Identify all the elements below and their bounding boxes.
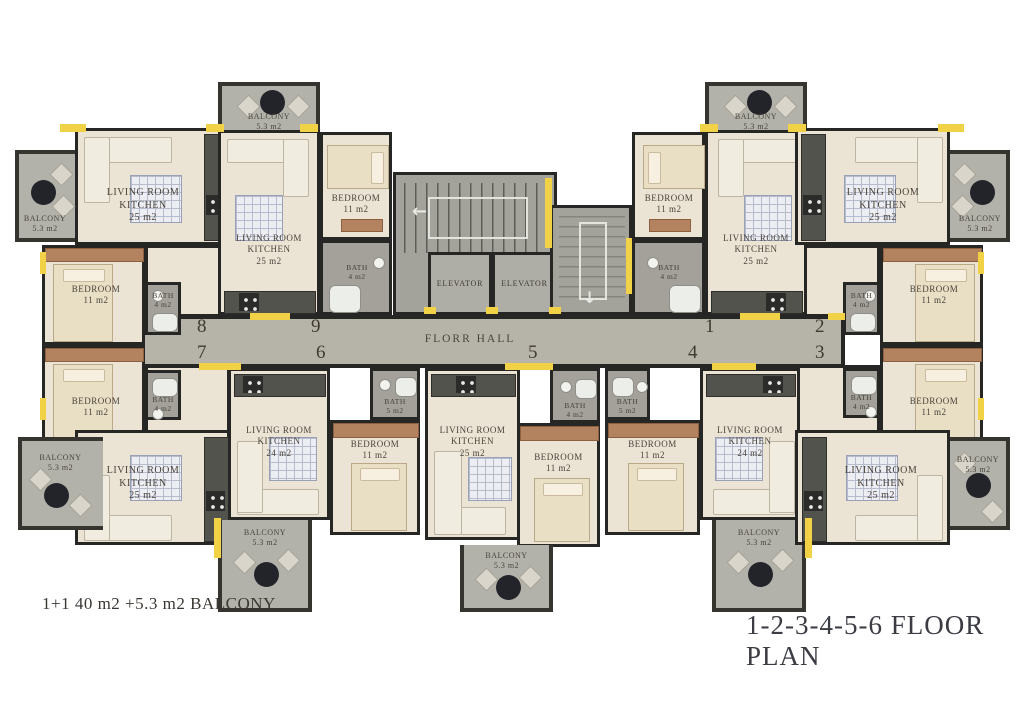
pillow bbox=[543, 483, 583, 496]
unit-4-bath: BATH 5 m2 bbox=[605, 368, 650, 420]
unit-5-living-room: LIVING ROOM KITCHEN 25 m2 bbox=[425, 368, 520, 540]
room-label: BATH 4 m2 bbox=[553, 401, 597, 420]
room-label: BEDROOM 11 m2 bbox=[608, 439, 697, 462]
wall-accent bbox=[978, 252, 984, 274]
shower bbox=[612, 377, 634, 397]
wall-accent bbox=[214, 518, 221, 558]
unit-1-bath: BATH 4 m2 bbox=[632, 240, 705, 315]
room-label: BEDROOM 11 m2 bbox=[323, 193, 389, 216]
room-label: BALCONY 5.3 m2 bbox=[954, 214, 1006, 234]
sink bbox=[636, 381, 648, 393]
pillow bbox=[371, 152, 384, 183]
wall-accent bbox=[788, 124, 806, 132]
room-label: BEDROOM 11 m2 bbox=[520, 452, 597, 475]
shower bbox=[395, 377, 417, 397]
wardrobe bbox=[333, 423, 419, 438]
wall-accent bbox=[206, 124, 224, 132]
room-label: BALCONY 5.3 m2 bbox=[22, 453, 99, 473]
pillow bbox=[360, 468, 400, 481]
hall-number-4: 4 bbox=[688, 342, 698, 364]
kitchen-counter bbox=[711, 291, 803, 314]
room-label: BEDROOM 11 m2 bbox=[51, 396, 141, 419]
wall-accent bbox=[712, 363, 756, 370]
balcony-table bbox=[496, 575, 521, 600]
hall-number-1: 1 bbox=[705, 316, 715, 338]
unit-4-bedroom: BEDROOM 11 m2 bbox=[605, 420, 700, 535]
wall-accent bbox=[805, 518, 812, 558]
wall-accent bbox=[545, 178, 552, 248]
room-label: LIVING ROOM KITCHEN 25 m2 bbox=[828, 187, 938, 225]
wall-accent bbox=[40, 252, 46, 274]
unit-5-bedroom: BEDROOM 11 m2 bbox=[517, 423, 600, 547]
pillow bbox=[925, 369, 968, 382]
balcony-table bbox=[254, 562, 279, 587]
pillow bbox=[63, 269, 106, 282]
room-label: BATH 4 m2 bbox=[335, 263, 379, 282]
shower bbox=[669, 285, 701, 313]
unit-8-bedroom: BEDROOM 11 m2 bbox=[42, 245, 145, 345]
room-label: LIVING ROOM KITCHEN 24 m2 bbox=[703, 425, 797, 459]
stove-icon bbox=[766, 293, 786, 311]
unit-2-living-room: LIVING ROOM KITCHEN 25 m2 bbox=[795, 128, 950, 245]
balcony-table bbox=[970, 180, 995, 205]
hall-number-2: 2 bbox=[815, 316, 825, 338]
room-label: BALCONY 5.3 m2 bbox=[716, 528, 802, 548]
elevator-1: ELEVATOR bbox=[428, 252, 492, 315]
room-label: BATH 4 m2 bbox=[846, 291, 877, 310]
unit-2-bath: BATH 4 m2 bbox=[843, 282, 880, 335]
unit-6-bedroom: BEDROOM 11 m2 bbox=[330, 420, 420, 535]
rug bbox=[468, 457, 512, 501]
kitchen-counter bbox=[801, 134, 826, 241]
room-label: BEDROOM 11 m2 bbox=[51, 284, 141, 307]
unit-9-living-room: LIVING ROOM KITCHEN 25 m2 bbox=[218, 130, 320, 315]
unit-1-bedroom: BEDROOM 11 m2 bbox=[632, 132, 705, 240]
legend-text: 1+1 40 m2 +5.3 m2 BALCONY bbox=[42, 594, 276, 614]
hall-number-5: 5 bbox=[528, 342, 538, 364]
unit-8-balcony: BALCONY 5.3 m2 bbox=[15, 150, 75, 242]
wall-accent bbox=[938, 124, 964, 132]
bed bbox=[534, 478, 590, 542]
elevator-1-label: ELEVATOR bbox=[431, 279, 489, 288]
hall-number-3: 3 bbox=[815, 342, 825, 364]
room-label: BALCONY 5.3 m2 bbox=[952, 455, 1004, 475]
unit-6-bath: BATH 5 m2 bbox=[370, 368, 420, 420]
stairwell-right: ↓ bbox=[550, 205, 632, 315]
sink bbox=[379, 379, 391, 391]
elevator-2-label: ELEVATOR bbox=[495, 279, 554, 288]
stove-icon bbox=[206, 491, 225, 511]
unit-6-living-room: LIVING ROOM KITCHEN 24 m2 bbox=[228, 368, 330, 520]
shower bbox=[152, 313, 178, 332]
unit-3-bath: BATH 4 m2 bbox=[843, 368, 880, 418]
wall-accent bbox=[978, 398, 984, 420]
floor-plan: FLORR HALL 8 9 1 2 7 6 5 4 3 ← ELEVATOR … bbox=[0, 0, 1024, 724]
shower bbox=[575, 379, 597, 399]
room-label: BEDROOM 11 m2 bbox=[889, 396, 979, 419]
room-label: LIVING ROOM KITCHEN 25 m2 bbox=[88, 465, 198, 503]
sofa bbox=[434, 451, 462, 535]
pillow bbox=[63, 369, 106, 382]
balcony-chair bbox=[726, 550, 750, 574]
balcony-chair bbox=[232, 550, 256, 574]
unit-7-balcony: BALCONY 5.3 m2 bbox=[18, 437, 103, 530]
stove-icon bbox=[763, 376, 783, 393]
unit-9-bedroom: BEDROOM 11 m2 bbox=[320, 132, 392, 240]
wardrobe bbox=[45, 348, 144, 362]
room-label: BALCONY 5.3 m2 bbox=[19, 214, 71, 234]
pillow bbox=[925, 269, 968, 282]
stairs-arrow-down-icon: ↓ bbox=[583, 288, 596, 307]
floor-hall-label: FLORR HALL bbox=[395, 333, 545, 345]
hall-number-8: 8 bbox=[197, 316, 207, 338]
pillow bbox=[637, 468, 677, 481]
room-label: BATH 4 m2 bbox=[148, 291, 178, 310]
wall-accent bbox=[700, 124, 718, 132]
shower bbox=[850, 313, 876, 332]
wall-accent bbox=[60, 124, 86, 132]
room-label: BATH 4 m2 bbox=[148, 395, 178, 414]
bed bbox=[643, 145, 705, 189]
wall-accent bbox=[828, 313, 845, 320]
wall-accent bbox=[626, 238, 632, 294]
shower bbox=[329, 285, 361, 313]
unit-7-bath: BATH 4 m2 bbox=[145, 370, 181, 420]
room-label: BATH 4 m2 bbox=[647, 263, 691, 282]
balcony-table bbox=[966, 473, 991, 498]
wall-accent bbox=[250, 313, 290, 320]
balcony-table bbox=[31, 180, 56, 205]
bed bbox=[351, 463, 407, 531]
hall-number-9: 9 bbox=[311, 316, 321, 338]
wall-accent bbox=[549, 307, 561, 314]
kitchen-counter bbox=[224, 291, 316, 314]
unit-9-balcony: BALCONY 5.3 m2 bbox=[218, 82, 320, 130]
unit-3-balcony: BALCONY 5.3 m2 bbox=[950, 437, 1010, 530]
balcony-table bbox=[44, 483, 69, 508]
room-label: BEDROOM 11 m2 bbox=[333, 439, 417, 462]
pillow bbox=[648, 152, 661, 183]
stove-icon bbox=[803, 195, 822, 215]
balcony-chair bbox=[68, 493, 92, 517]
room-label: LIVING ROOM KITCHEN 24 m2 bbox=[231, 425, 327, 459]
hall-number-7: 7 bbox=[197, 342, 207, 364]
unit-1-living-room: LIVING ROOM KITCHEN 25 m2 bbox=[705, 130, 807, 315]
room-label: BATH 5 m2 bbox=[373, 397, 417, 416]
stove-icon bbox=[243, 376, 263, 393]
plan-title: 1-2-3-4-5-6 FLOOR PLAN bbox=[746, 610, 1024, 672]
wall-accent bbox=[486, 307, 498, 314]
unit-9-bath: BATH 4 m2 bbox=[320, 240, 392, 315]
sink bbox=[560, 381, 572, 393]
elevator-2: ELEVATOR bbox=[492, 252, 557, 315]
bed bbox=[327, 145, 389, 189]
unit-2-balcony: BALCONY 5.3 m2 bbox=[950, 150, 1010, 242]
unit-4-living-room: LIVING ROOM KITCHEN 24 m2 bbox=[700, 368, 800, 520]
unit-1-balcony: BALCONY 5.3 m2 bbox=[705, 82, 807, 130]
unit-4-balcony: BALCONY 5.3 m2 bbox=[712, 520, 806, 612]
unit-5-balcony: BALCONY 5.3 m2 bbox=[460, 545, 553, 612]
room-label: LIVING ROOM KITCHEN 25 m2 bbox=[826, 465, 936, 503]
dresser bbox=[341, 219, 383, 232]
balcony-table bbox=[748, 562, 773, 587]
wall-accent bbox=[40, 398, 46, 420]
unit-8-living-room: LIVING ROOM KITCHEN 25 m2 bbox=[75, 128, 230, 245]
wall-accent bbox=[300, 124, 318, 132]
room-label: LIVING ROOM KITCHEN 25 m2 bbox=[708, 233, 804, 267]
balcony-chair bbox=[474, 567, 498, 591]
unit-5-bath: BATH 4 m2 bbox=[550, 368, 600, 423]
wardrobe bbox=[883, 348, 982, 362]
balcony-chair bbox=[276, 548, 300, 572]
wardrobe bbox=[883, 248, 982, 262]
room-label: BEDROOM 11 m2 bbox=[889, 284, 979, 307]
room-label: LIVING ROOM KITCHEN 25 m2 bbox=[88, 187, 198, 225]
room-label: LIVING ROOM KITCHEN 25 m2 bbox=[428, 425, 517, 459]
stove-icon bbox=[456, 376, 476, 393]
wardrobe bbox=[520, 426, 599, 441]
wardrobe bbox=[608, 423, 699, 438]
room-label: BATH 5 m2 bbox=[608, 397, 647, 416]
unit-3-living-room: LIVING ROOM KITCHEN 25 m2 bbox=[795, 430, 950, 545]
room-label: BATH 4 m2 bbox=[846, 393, 877, 412]
wall-accent bbox=[740, 313, 780, 320]
wall-accent bbox=[505, 363, 553, 370]
room-label: BEDROOM 11 m2 bbox=[635, 193, 703, 216]
balcony-chair bbox=[49, 162, 73, 186]
stove-icon bbox=[239, 293, 259, 311]
balcony-chair bbox=[980, 499, 1004, 523]
stairs-arrow-left-icon: ← bbox=[412, 201, 427, 222]
sofa bbox=[283, 139, 309, 197]
stairs-rail bbox=[428, 197, 528, 239]
dresser bbox=[649, 219, 691, 232]
hall-number-6: 6 bbox=[316, 342, 326, 364]
sofa bbox=[718, 139, 744, 197]
stove-icon bbox=[804, 491, 823, 511]
wall-accent bbox=[424, 307, 436, 314]
unit-8-bath: BATH 4 m2 bbox=[145, 282, 181, 335]
bed bbox=[628, 463, 684, 531]
wall-accent bbox=[199, 363, 241, 370]
wardrobe bbox=[45, 248, 144, 262]
unit-2-bedroom: BEDROOM 11 m2 bbox=[880, 245, 983, 345]
balcony-chair bbox=[770, 548, 794, 572]
room-label: LIVING ROOM KITCHEN 25 m2 bbox=[221, 233, 317, 267]
room-label: BALCONY 5.3 m2 bbox=[464, 551, 549, 571]
room-label: BALCONY 5.3 m2 bbox=[222, 528, 308, 548]
